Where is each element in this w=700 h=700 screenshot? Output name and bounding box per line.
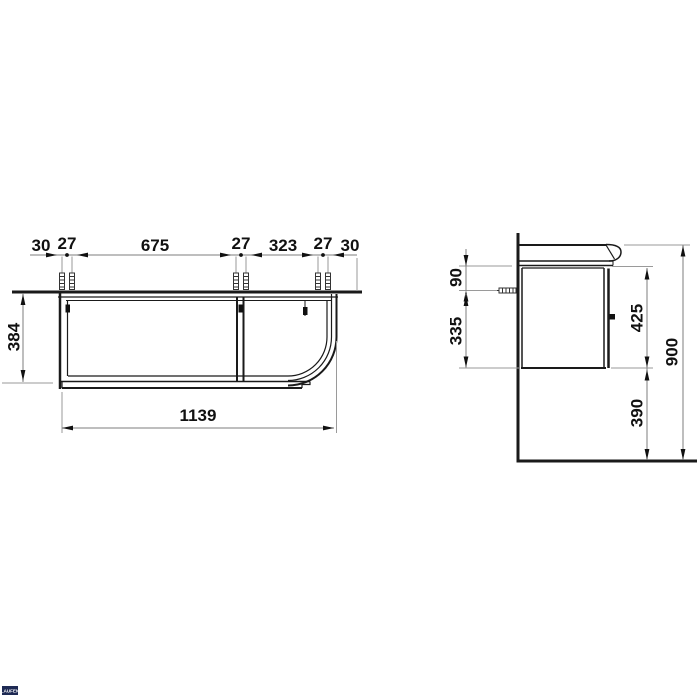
side-view: 90 335 425 390 (447, 233, 698, 462)
dim-label-675: 675 (141, 236, 169, 255)
dim-label-1139: 1139 (180, 406, 217, 425)
dim-label-27-left: 27 (58, 234, 77, 253)
dim-label-90: 90 (447, 268, 466, 287)
dimension-390: 390 (628, 368, 650, 460)
dim-label-30-right: 30 (341, 236, 360, 255)
hinge-mark-middle (239, 305, 244, 313)
mounting-screw-symbol (316, 257, 321, 290)
mounting-screw-symbol (70, 257, 75, 290)
mounting-screw-symbol (244, 257, 249, 290)
logo-wordmark: LAUFEN (1, 689, 19, 694)
front-view: 30 27 675 27 323 27 30 384 1139 (2, 234, 362, 433)
dimension-335: 335 (447, 294, 520, 368)
dim-label-390: 390 (628, 399, 647, 427)
interior-bottom-and-inner-curve (68, 301, 327, 377)
basin-nose-diagonal (606, 245, 615, 259)
dimension-top-chain: 30 27 675 27 323 27 30 (30, 234, 359, 291)
mounting-screw-symbol (326, 257, 331, 290)
dim-label-335: 335 (447, 317, 466, 345)
laufen-logo: LAUFEN (1, 686, 19, 695)
mounting-screw-symbol (60, 257, 65, 290)
technical-drawing-canvas: 30 27 675 27 323 27 30 384 1139 (0, 0, 700, 700)
dimension-90: 90 (447, 249, 513, 302)
dim-label-384: 384 (5, 322, 24, 351)
hinge-mark-left (66, 305, 71, 313)
dim-label-323: 323 (269, 236, 297, 255)
dimension-425: 425 (611, 267, 653, 369)
door-curve-outer (288, 294, 337, 386)
dimension-height-384: 384 (2, 293, 53, 383)
door-handle-mark (610, 314, 616, 320)
mounting-screw-symbol (234, 257, 239, 290)
dim-label-425: 425 (628, 304, 647, 332)
dim-label-27-right: 27 (314, 234, 333, 253)
mounting-screws-front (60, 257, 331, 290)
mounting-screw-symbol-side (494, 288, 516, 293)
dim-label-27-middle: 27 (232, 234, 251, 253)
dim-label-30-left: 30 (32, 236, 51, 255)
basin-nose-curve (606, 245, 621, 262)
dim-label-900: 900 (663, 338, 682, 366)
hinge-mark-right (303, 307, 308, 315)
